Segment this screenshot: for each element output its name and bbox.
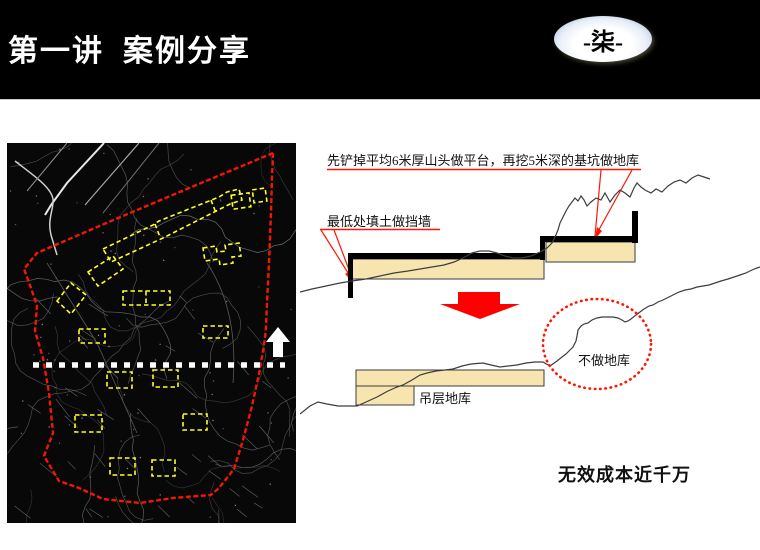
conclusion-text: 无效成本近千万	[558, 464, 691, 485]
upper-platform-slab	[543, 236, 637, 242]
annotation-left-text: 最低处填土做挡墙	[327, 214, 431, 229]
presentation-slide: 第一讲 案例分享 -柒-	[0, 0, 760, 550]
step-wall	[540, 236, 545, 260]
annotation-left-leader	[321, 230, 351, 276]
hanging-basement-upper-block	[356, 370, 544, 386]
annotation-top-leader	[595, 170, 632, 236]
header-bar: 第一讲 案例分享 -柒-	[0, 0, 760, 100]
slide-title: 第一讲 案例分享	[8, 26, 251, 70]
site-plan-map	[7, 143, 296, 523]
red-down-arrow	[440, 292, 520, 319]
section-diagram: 先铲掉平均6米厚山头做平台，再挖5米深的基坑做地库 最低处填土做挡墙	[300, 140, 760, 520]
retaining-wall-right	[632, 211, 638, 243]
page-number-label: -柒-	[583, 22, 623, 57]
annotation-top-text: 先铲掉平均6米厚山头做平台，再挖5米深的基坑做地库	[327, 153, 639, 168]
retaining-wall-left	[348, 253, 353, 298]
no-basement-circle	[543, 299, 651, 389]
page-number-badge: -柒-	[554, 16, 652, 62]
upper-basement-block	[546, 242, 635, 262]
no-basement-label: 不做地库	[578, 353, 630, 368]
hanging-basement-label: 吊层地库	[419, 391, 471, 406]
